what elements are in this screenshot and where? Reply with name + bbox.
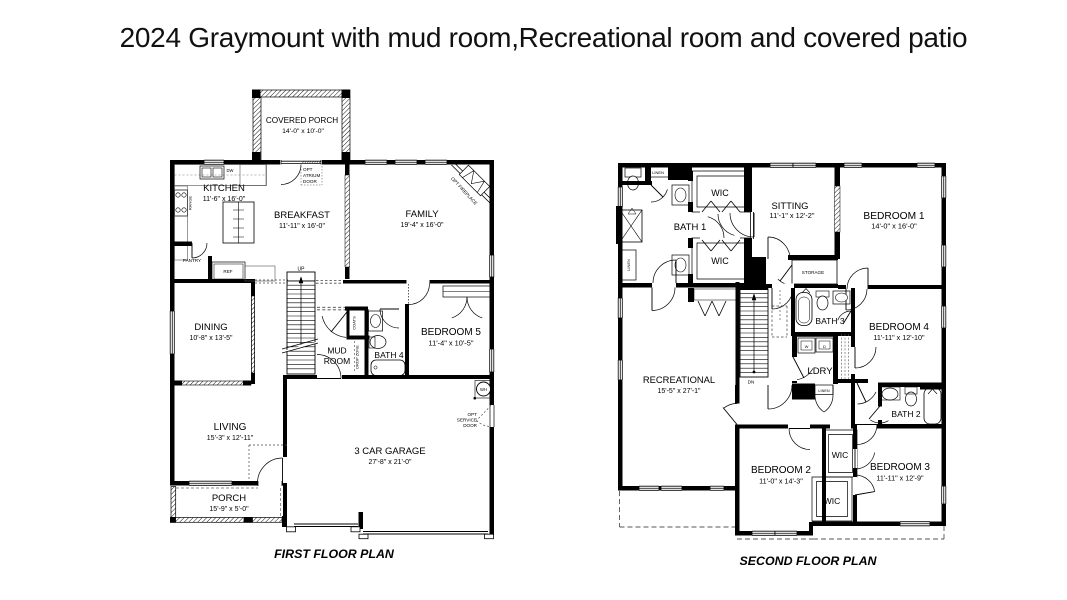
svg-text:11'-11" x 12'-9": 11'-11" x 12'-9" — [876, 474, 924, 483]
svg-text:PORCH: PORCH — [212, 493, 246, 504]
svg-text:ROOM: ROOM — [324, 356, 350, 366]
svg-text:11'-11" x 12'-10": 11'-11" x 12'-10" — [873, 333, 925, 342]
svg-text:LINEN: LINEN — [818, 389, 829, 393]
svg-text:OPT: OPT — [303, 167, 313, 172]
svg-text:WIC: WIC — [824, 496, 841, 506]
svg-text:BEDROOM 5: BEDROOM 5 — [421, 327, 481, 338]
svg-text:LINEN: LINEN — [626, 259, 631, 271]
svg-text:BEDROOM 2: BEDROOM 2 — [751, 465, 811, 476]
svg-text:BEDROOM 3: BEDROOM 3 — [870, 462, 930, 473]
svg-text:15'-9" x 5'-0": 15'-9" x 5'-0" — [209, 506, 249, 513]
svg-text:BATH 3: BATH 3 — [815, 316, 844, 326]
svg-text:DN: DN — [748, 380, 755, 385]
svg-text:DROP ZONE: DROP ZONE — [355, 345, 360, 369]
svg-text:15'-3" x 12'-11": 15'-3" x 12'-11" — [207, 435, 254, 442]
svg-text:MUD: MUD — [327, 346, 346, 356]
svg-text:OPT: OPT — [468, 412, 478, 417]
svg-text:14'-0" x 10'-0": 14'-0" x 10'-0" — [282, 128, 324, 135]
svg-text:11'-11" x 16'-0": 11'-11" x 16'-0" — [279, 223, 325, 230]
svg-text:BEDROOM 1: BEDROOM 1 — [863, 211, 924, 222]
svg-text:LINEN: LINEN — [652, 170, 664, 175]
svg-text:FIRST FLOOR PLAN: FIRST FLOOR PLAN — [274, 547, 395, 561]
svg-text:UP: UP — [298, 267, 306, 273]
svg-text:BATH 4: BATH 4 — [374, 350, 403, 360]
svg-text:REF: REF — [223, 269, 232, 274]
svg-text:15'-5" x 27'-1": 15'-5" x 27'-1" — [657, 388, 701, 395]
svg-text:RECREATIONAL: RECREATIONAL — [643, 374, 715, 385]
svg-text:WIC: WIC — [711, 188, 729, 198]
svg-text:BREAKFAST: BREAKFAST — [274, 210, 330, 221]
svg-text:KITCHEN: KITCHEN — [203, 183, 245, 194]
svg-text:ATRIUM: ATRIUM — [303, 173, 320, 178]
svg-text:DOOR: DOOR — [463, 423, 477, 428]
svg-text:BATH 1: BATH 1 — [674, 222, 707, 233]
svg-text:11'-6" x 16'-0": 11'-6" x 16'-0" — [203, 196, 246, 203]
svg-text:11'-1" x 12'-2": 11'-1" x 12'-2" — [770, 211, 815, 220]
svg-text:WIC: WIC — [832, 450, 849, 460]
svg-text:PANTRY: PANTRY — [183, 258, 201, 263]
svg-text:FAMILY: FAMILY — [405, 209, 439, 220]
svg-text:SITTING: SITTING — [772, 200, 809, 211]
svg-text:LIVING: LIVING — [214, 422, 247, 433]
svg-text:COVERED PORCH: COVERED PORCH — [266, 116, 338, 125]
svg-text:W: W — [805, 344, 809, 349]
svg-text:D: D — [823, 344, 826, 349]
svg-text:3 CAR GARAGE: 3 CAR GARAGE — [354, 446, 425, 457]
svg-text:14'-0" x 16'-0": 14'-0" x 16'-0" — [871, 222, 917, 231]
svg-text:SERVICE: SERVICE — [457, 418, 477, 423]
svg-text:RANGE: RANGE — [188, 196, 193, 211]
svg-text:WIC: WIC — [711, 256, 729, 266]
svg-text:COATS: COATS — [352, 316, 357, 330]
svg-text:27'-8" x 21'-0": 27'-8" x 21'-0" — [368, 459, 412, 466]
svg-text:SECOND FLOOR PLAN: SECOND FLOOR PLAN — [740, 554, 878, 568]
svg-text:19'-4" x 16'-0": 19'-4" x 16'-0" — [400, 222, 444, 229]
svg-text:11'-0" x 14'-3": 11'-0" x 14'-3" — [759, 477, 803, 486]
svg-text:11'-4" x 10'-5": 11'-4" x 10'-5" — [429, 339, 474, 348]
svg-text:DW: DW — [227, 168, 234, 173]
svg-text:DINING: DINING — [194, 322, 227, 333]
svg-text:STORAGE: STORAGE — [802, 270, 824, 275]
svg-text:BEDROOM 4: BEDROOM 4 — [869, 322, 929, 333]
svg-text:BATH 2: BATH 2 — [891, 409, 920, 419]
svg-text:10'-8" x 13'-5": 10'-8" x 13'-5" — [189, 335, 233, 342]
svg-text:DOOR: DOOR — [303, 179, 317, 184]
svg-text:WH: WH — [480, 387, 487, 392]
